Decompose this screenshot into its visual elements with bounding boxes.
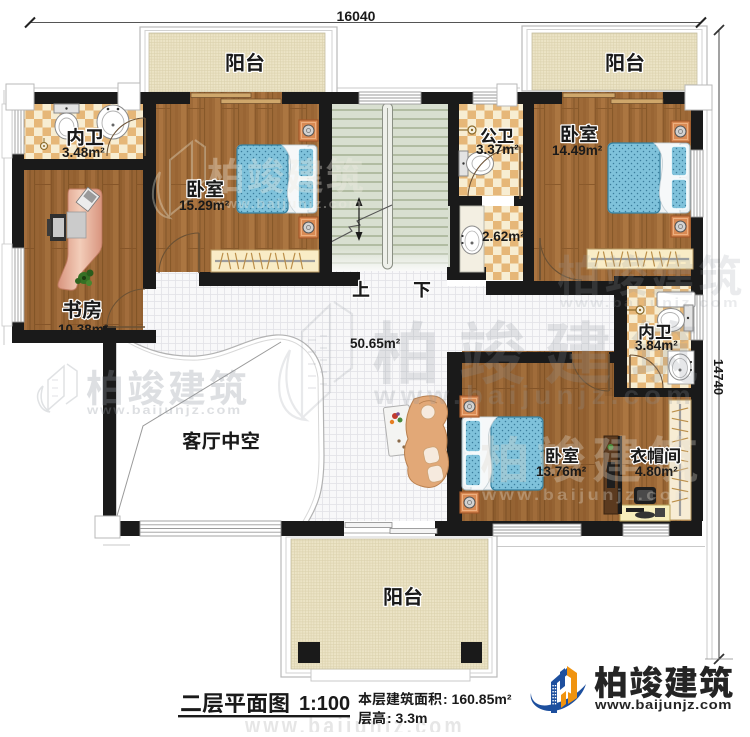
svg-text:14.49m²: 14.49m² (552, 143, 603, 158)
svg-text:www.baijunjz.com: www.baijunjz.com (86, 405, 242, 417)
svg-text:4.80m²: 4.80m² (635, 464, 678, 479)
svg-text:: 3.3m: : 3.3m (387, 710, 427, 726)
svg-text:10.38m²: 10.38m² (58, 322, 109, 337)
svg-text:: 160.85m²: : 160.85m² (443, 691, 512, 707)
svg-text:www.baijunjz.com: www.baijunjz.com (559, 295, 740, 310)
svg-text:13.76m²: 13.76m² (536, 464, 587, 479)
svg-text:3.37m²: 3.37m² (476, 142, 519, 157)
svg-text:50.65m²: 50.65m² (350, 336, 401, 351)
svg-text:16040: 16040 (337, 8, 376, 24)
svg-text:www.baijunjz.com: www.baijunjz.com (594, 697, 732, 712)
svg-text:www.baijunjz.com: www.baijunjz.com (481, 487, 694, 504)
svg-text:www.baijunjz.com: www.baijunjz.com (212, 197, 363, 211)
svg-text:www.baijunjz.com: www.baijunjz.com (373, 380, 696, 410)
svg-text:1:100: 1:100 (299, 693, 350, 715)
svg-text:2.62m²: 2.62m² (482, 229, 525, 244)
svg-text:14740: 14740 (711, 359, 726, 395)
svg-text:3.48m²: 3.48m² (62, 145, 105, 160)
svg-text:3.84m²: 3.84m² (635, 338, 678, 353)
svg-text:15.29m²: 15.29m² (179, 198, 230, 213)
